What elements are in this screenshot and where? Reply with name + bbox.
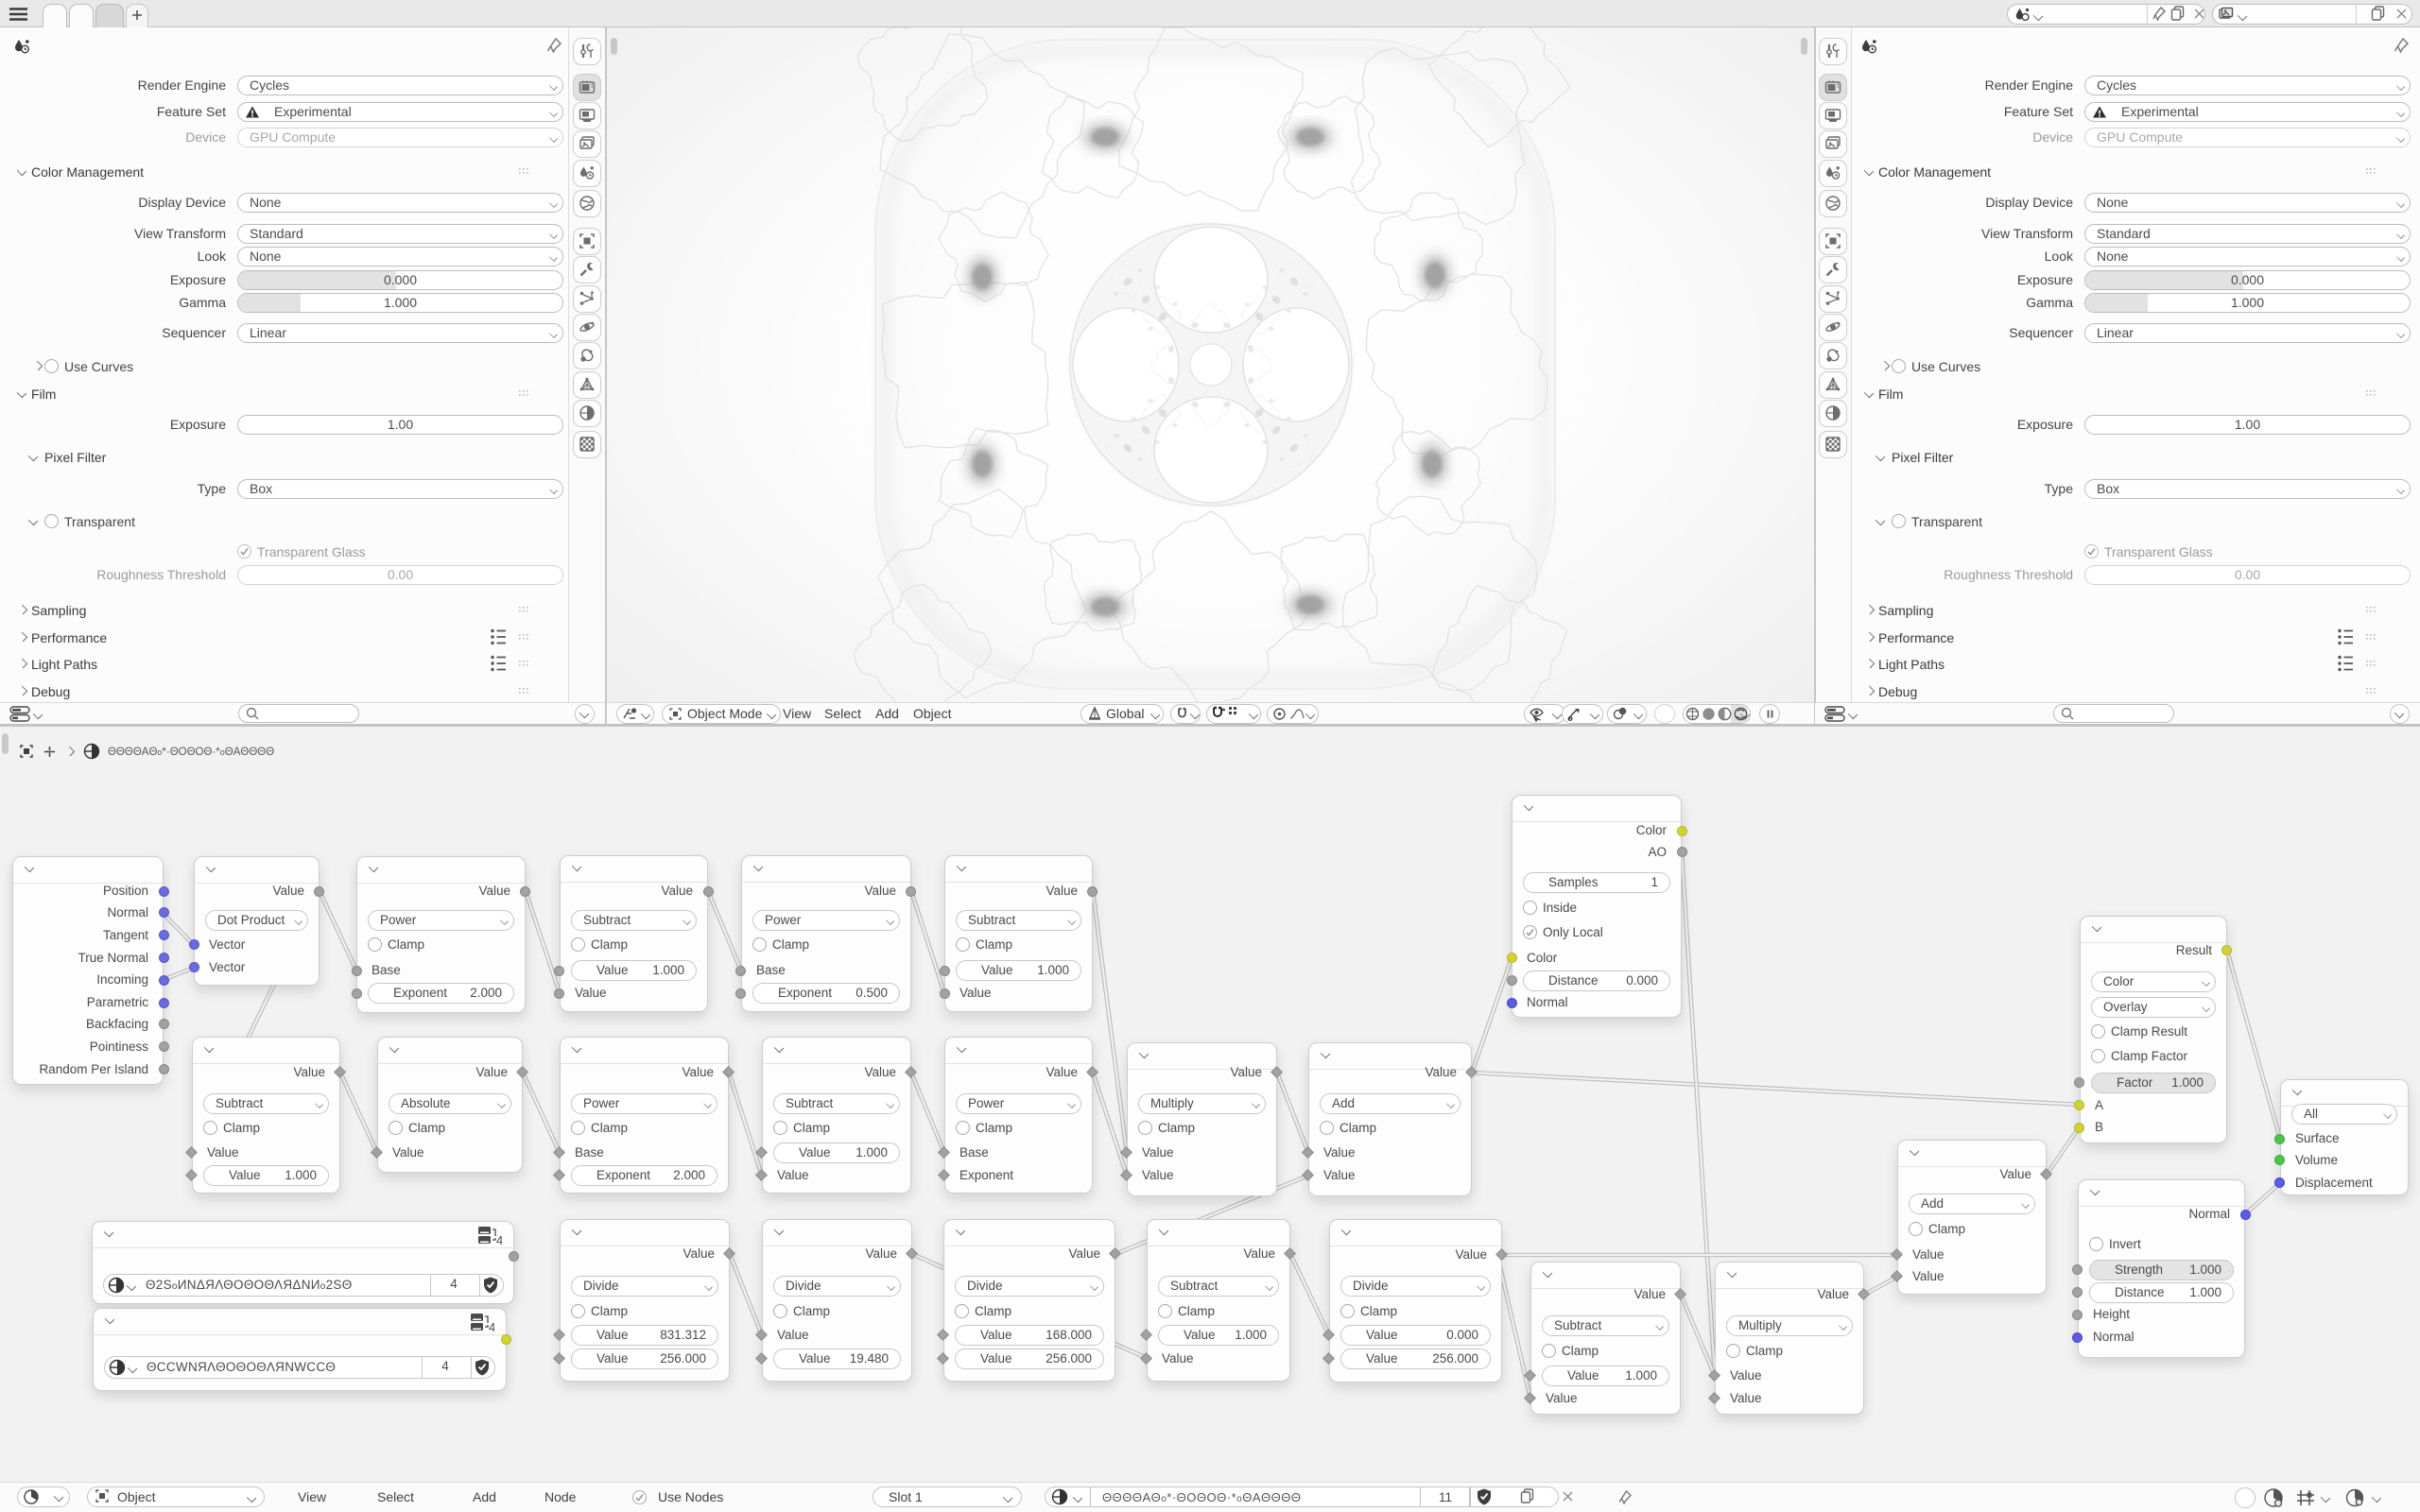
svg-text:4: 4 [489,1320,494,1333]
svg-text:4: 4 [496,1233,502,1246]
